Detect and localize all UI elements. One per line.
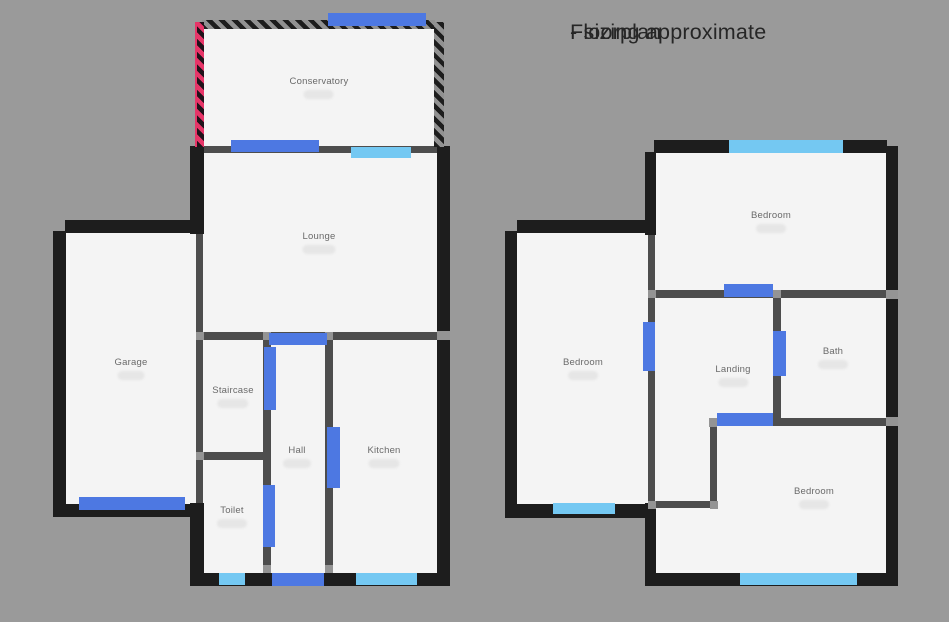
door-toilet <box>263 485 275 547</box>
room-name-hall: Hall <box>288 445 305 456</box>
dimension-blob <box>217 519 247 528</box>
wall-garage-right <box>196 232 203 505</box>
dimension-blob <box>756 224 786 233</box>
wall-bath-bottom <box>773 418 886 426</box>
wall-connector <box>886 290 898 299</box>
wall-connector <box>648 290 656 298</box>
wall-garage-left <box>53 231 66 517</box>
room-name-toilet: Toilet <box>220 505 243 516</box>
wall-connector <box>709 418 717 427</box>
window-conservatory-lounge <box>351 147 411 158</box>
room-name-garage: Garage <box>115 357 148 368</box>
window-kitchen <box>356 573 417 585</box>
door-bedroom-bottom <box>717 413 773 426</box>
room-name-bedroom-top: Bedroom <box>751 210 791 221</box>
room-name-staircase: Staircase <box>212 385 253 396</box>
door-garage <box>79 497 185 510</box>
wall-connector <box>773 290 781 298</box>
door-lounge-hall <box>269 333 327 345</box>
room-name-kitchen: Kitchen <box>367 445 400 456</box>
wall-bedroom-left-top <box>517 220 656 233</box>
room-label-bedroom-bottom: Bedroom <box>794 486 834 509</box>
wall-landing-lower-vert <box>710 426 717 508</box>
room-label-garage: Garage <box>115 357 148 380</box>
dimension-blob <box>568 371 598 380</box>
room-label-bedroom-left: Bedroom <box>563 357 603 380</box>
room-label-hall: Hall <box>283 445 311 468</box>
dimension-blob <box>304 90 334 99</box>
room-label-kitchen: Kitchen <box>367 445 400 468</box>
window-bedroom-bottom <box>740 573 857 585</box>
door-conservatory-top <box>328 13 426 26</box>
dimension-blob <box>799 500 829 509</box>
plan-title-line2: - sizing approximate <box>570 19 766 46</box>
door-bedroom-left <box>643 322 655 371</box>
wall-connector <box>196 452 204 460</box>
door-bath <box>773 331 786 376</box>
room-label-landing: Landing <box>715 364 750 387</box>
wall-connector <box>710 501 718 509</box>
door-conservatory-lounge <box>231 140 319 152</box>
door-kitchen <box>327 427 340 488</box>
wall-bedroom-left-left <box>505 231 517 518</box>
dimension-blob <box>218 399 249 408</box>
room-name-landing: Landing <box>715 364 750 375</box>
dimension-blob <box>718 378 748 387</box>
wall-ground-right <box>437 146 450 586</box>
wall-staircase-toilet <box>204 452 264 460</box>
window-bedroom-left <box>553 503 615 514</box>
floorplan-canvas: Floorplan - sizing approximate Conservat <box>0 0 949 622</box>
dimension-blob <box>283 459 311 468</box>
room-label-conservatory: Conservatory <box>290 76 349 99</box>
room-label-bedroom-top: Bedroom <box>751 210 791 233</box>
room-name-conservatory: Conservatory <box>290 76 349 87</box>
room-name-bedroom-left: Bedroom <box>563 357 603 368</box>
dimension-blob <box>117 371 144 380</box>
room-name-bath: Bath <box>823 346 843 357</box>
wall-connector <box>886 417 898 426</box>
room-label-toilet: Toilet <box>217 505 247 528</box>
room-label-staircase: Staircase <box>212 385 253 408</box>
room-label-bath: Bath <box>818 346 848 369</box>
wall-garage-top <box>65 220 204 233</box>
wall-landing-bottom <box>655 501 717 508</box>
room-label-lounge: Lounge <box>303 231 336 254</box>
wall-connector <box>263 565 271 573</box>
wall-conservatory-left-pink-hatched <box>195 22 204 147</box>
dimension-blob <box>369 459 400 468</box>
dimension-blob <box>818 360 848 369</box>
window-toilet <box>219 573 245 585</box>
door-front <box>272 573 324 586</box>
wall-connector <box>325 565 333 573</box>
wall-conservatory-right-hatched <box>434 22 444 147</box>
room-name-bedroom-bottom: Bedroom <box>794 486 834 497</box>
door-bedroom-top <box>724 284 773 297</box>
door-staircase <box>264 347 276 410</box>
wall-connector <box>196 332 204 340</box>
wall-connector <box>648 501 656 509</box>
room-name-lounge: Lounge <box>303 231 336 242</box>
dimension-blob <box>303 245 336 254</box>
wall-connector <box>437 331 450 340</box>
window-bedroom-top <box>729 140 843 153</box>
wall-first-right <box>886 146 898 586</box>
